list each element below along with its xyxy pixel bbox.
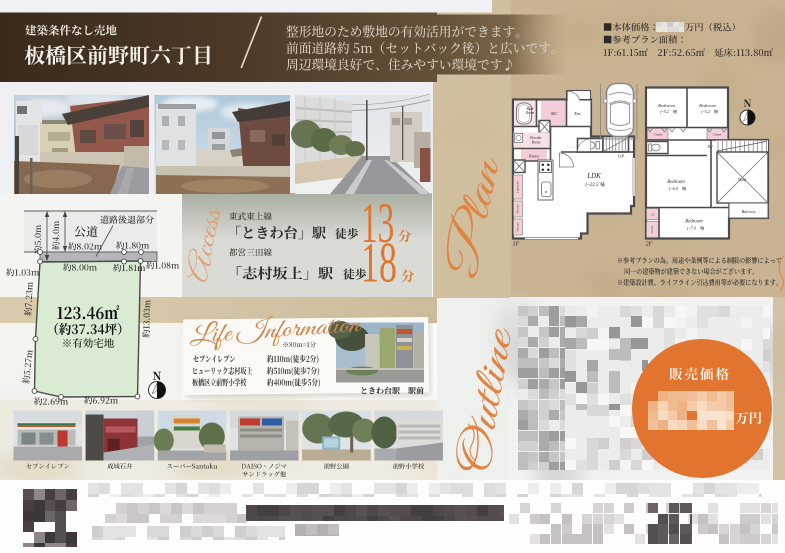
svg-text:(~7.0: (~7.0 <box>687 226 697 231</box>
svg-text:(~6.0: (~6.0 <box>669 186 679 191</box>
svg-text:2F: 2F <box>646 242 653 248</box>
svg-text:(~5.2: (~5.2 <box>701 109 710 114</box>
svg-text:Pantry: Pantry <box>528 155 540 159</box>
svg-text:Closet: Closet <box>650 226 654 234</box>
svg-text:Cl.: Cl. <box>650 213 654 217</box>
svg-text:Bedroom: Bedroom <box>685 220 703 225</box>
svg-text:Bedroom: Bedroom <box>658 103 675 108</box>
svg-text:LDK: LDK <box>586 172 601 180</box>
svg-text:Closet: Closet <box>654 133 664 137</box>
svg-text:Powder: Powder <box>529 136 542 140</box>
svg-text:Bedroom: Bedroom <box>699 103 716 108</box>
svg-text:DN: DN <box>707 145 714 149</box>
svg-text:Void: Void <box>738 177 747 182</box>
svg-text:Balcony: Balcony <box>742 209 756 214</box>
svg-text:Storage: Storage <box>516 222 520 232</box>
svg-text:Cupboard: Cupboard <box>516 180 520 193</box>
svg-text:Bedroom: Bedroom <box>667 180 685 185</box>
svg-text:Room: Room <box>531 141 541 145</box>
svg-text:Storage: Storage <box>516 204 520 214</box>
svg-text:): ) <box>601 183 604 188</box>
svg-text:1F: 1F <box>513 242 520 248</box>
svg-text:Room: Room <box>525 111 535 115</box>
svg-text:Closet: Closet <box>713 133 723 137</box>
svg-text:UP: UP <box>618 154 624 159</box>
svg-text:Ent.: Ent. <box>573 111 581 116</box>
svg-text:(~22.5: (~22.5 <box>585 183 599 188</box>
svg-text:(~5.2: (~5.2 <box>660 109 669 114</box>
svg-text:SIC: SIC <box>551 111 558 116</box>
svg-text:18: 18 <box>361 233 397 295</box>
